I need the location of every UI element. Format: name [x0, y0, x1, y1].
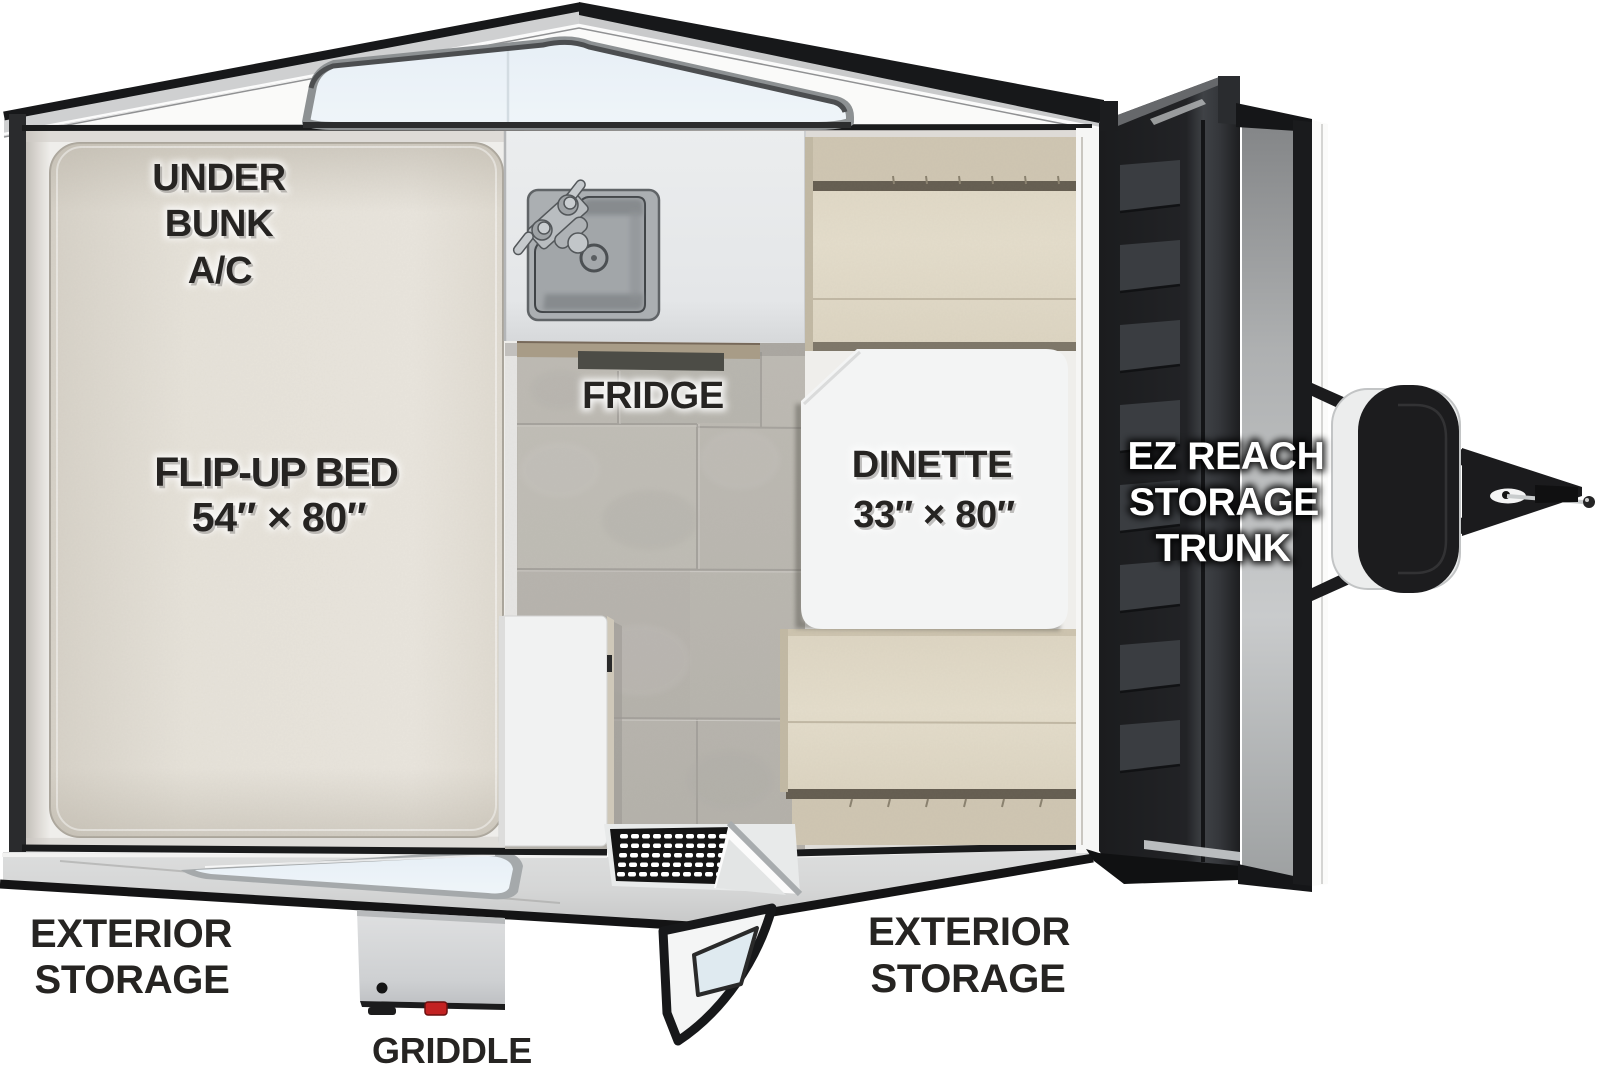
svg-text:54″ × 80″: 54″ × 80″ [192, 494, 367, 540]
svg-text:STORAGE: STORAGE [35, 958, 230, 1002]
svg-text:UNDER: UNDER [152, 157, 286, 199]
svg-text:EXTERIOR: EXTERIOR [30, 912, 232, 956]
svg-text:BUNK: BUNK [165, 203, 274, 245]
svg-text:FRIDGE: FRIDGE [582, 375, 724, 417]
svg-text:FLIP-UP BED: FLIP-UP BED [154, 449, 397, 495]
svg-text:STORAGE: STORAGE [871, 957, 1066, 1001]
svg-text:DINETTE: DINETTE [852, 444, 1012, 486]
svg-text:33″ × 80″: 33″ × 80″ [853, 494, 1015, 536]
svg-text:GRIDDLE: GRIDDLE [372, 1030, 532, 1065]
svg-text:TRUNK: TRUNK [1156, 527, 1291, 570]
svg-text:A/C: A/C [188, 250, 253, 292]
svg-text:EXTERIOR: EXTERIOR [868, 910, 1070, 954]
svg-text:STORAGE: STORAGE [1129, 481, 1319, 524]
svg-text:EZ REACH: EZ REACH [1128, 435, 1325, 478]
